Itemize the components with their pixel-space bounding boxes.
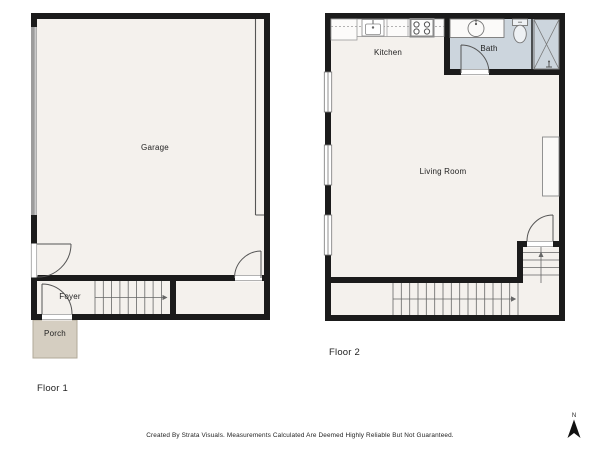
- window-icon: [324, 145, 331, 185]
- floor2-plan: Kitchen Bath Living Room Floor 2: [324, 13, 565, 358]
- floor1-title: Floor 1: [37, 383, 68, 394]
- window-icon: [324, 72, 331, 112]
- toilet-icon: [513, 19, 528, 43]
- floorplan-page: Garage Foyer Porch Floor 1: [0, 0, 600, 450]
- window-icon: [324, 215, 331, 255]
- floor2-title: Floor 2: [329, 347, 360, 358]
- fireplace-icon: [543, 137, 560, 196]
- floorplan-image: Garage Foyer Porch Floor 1: [0, 0, 600, 450]
- kitchen-sink-icon: [362, 20, 384, 37]
- north-label: N: [572, 413, 576, 419]
- window-icons: [324, 72, 331, 255]
- garage-door-icon: [31, 27, 37, 215]
- bath-label: Bath: [480, 44, 497, 53]
- bathroom-sink-icon: [450, 19, 504, 38]
- foyer-label: Foyer: [59, 292, 81, 301]
- kitchen-counter: [331, 19, 444, 40]
- disclaimer-text: Created By Strata Visuals. Measurements …: [146, 432, 454, 439]
- stove-icon: [411, 19, 434, 37]
- porch-area: [33, 320, 77, 358]
- porch-label: Porch: [44, 329, 66, 338]
- kitchen-label: Kitchen: [374, 48, 402, 57]
- north-arrow-icon: N: [568, 413, 581, 438]
- floor1-plan: Garage Foyer Porch Floor 1: [31, 13, 271, 394]
- living-room-label: Living Room: [420, 167, 467, 176]
- floor1-interior: [37, 19, 264, 314]
- garage-label: Garage: [141, 143, 169, 152]
